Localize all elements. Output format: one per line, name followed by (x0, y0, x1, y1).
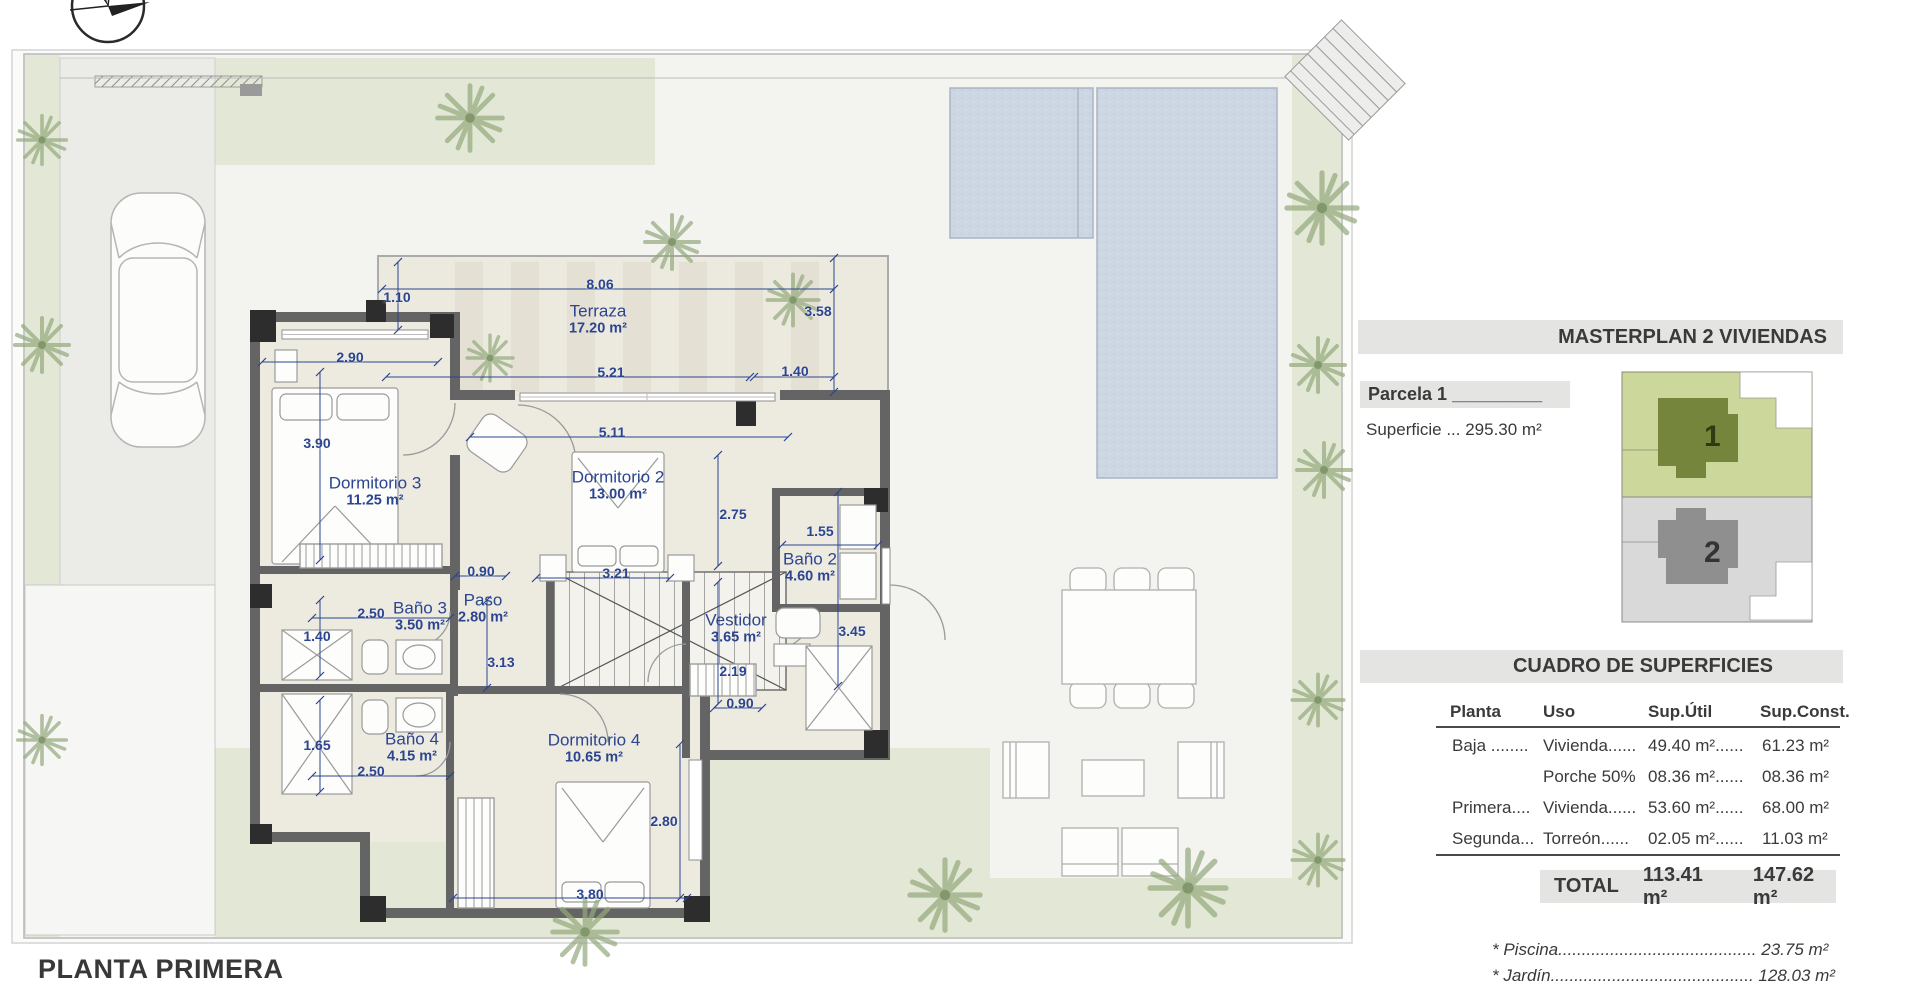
parcela-banner: Parcela 1 _________ (1360, 381, 1570, 408)
col-header-planta: Planta (1450, 702, 1501, 722)
plan-sheet: Terraza17.20 m²Dormitorio 311.25 m²Dormi… (0, 0, 1920, 980)
table-cell: 61.23 m² (1762, 736, 1829, 756)
garden-band-top (215, 58, 655, 165)
table-cell: 53.60 m²...... (1648, 798, 1743, 818)
compass-icon (70, 0, 150, 42)
table-cell: 68.00 m² (1762, 798, 1829, 818)
note-piscina: * Piscina...............................… (1492, 940, 1828, 960)
floor-title: PLANTA PRIMERA (38, 954, 284, 985)
closet (282, 630, 352, 794)
wardrobe-dorm4 (458, 798, 494, 908)
gate-post (240, 84, 262, 96)
table-rule-top (1436, 726, 1840, 728)
table-cell: 08.36 m²...... (1648, 767, 1743, 787)
bed-dorm3 (272, 388, 398, 564)
bed-dorm2 (572, 452, 664, 572)
table-rule-bottom (1436, 854, 1840, 856)
bath3-fixtures (362, 640, 442, 674)
radiator (300, 544, 442, 568)
table-cell: 11.03 m² (1762, 829, 1828, 849)
total-label: TOTAL (1554, 875, 1619, 898)
col-header-sup-util: Sup.Útil (1648, 702, 1712, 722)
nightstand (275, 350, 297, 382)
cuadro-title: CUADRO DE SUPERFICIES (1513, 655, 1773, 678)
bed-dorm4 (556, 782, 650, 908)
bath4-fixtures (362, 698, 442, 734)
dining-table (1062, 568, 1196, 708)
masterplan-minimap: 1 2 (1620, 370, 1816, 626)
table-cell: Vivienda...... (1543, 798, 1636, 818)
total-banner: TOTAL 113.41 m² 147.62 m² (1540, 870, 1836, 903)
table-cell: 08.36 m² (1762, 767, 1829, 787)
table-cell: Baja ........ (1452, 736, 1529, 756)
note-jardin: * Jardín................................… (1492, 966, 1835, 986)
nightstand (668, 555, 694, 581)
col-header-sup-const: Sup.Const. (1760, 702, 1850, 722)
table-cell: Segunda... (1452, 829, 1534, 849)
parcela-label: Parcela 1 _________ (1368, 384, 1542, 405)
patio-lower-left (25, 585, 215, 935)
total-sup-util: 113.41 m² (1643, 864, 1725, 910)
superficie-label: Superficie ... 295.30 m² (1366, 420, 1542, 440)
minimap-plot2-label: 2 (1704, 536, 1721, 569)
table-cell: 49.40 m²...... (1648, 736, 1743, 756)
masterplan-title-banner: MASTERPLAN 2 VIVIENDAS (1358, 320, 1843, 354)
cuadro-title-banner: CUADRO DE SUPERFICIES (1360, 650, 1843, 683)
col-header-uso: Uso (1543, 702, 1575, 722)
nightstand (540, 555, 566, 581)
table-cell: 02.05 m²...... (1648, 829, 1743, 849)
table-cell: Porche 50% (1543, 767, 1636, 787)
table-cell: Primera.... (1452, 798, 1530, 818)
vestidor-closet (690, 664, 756, 696)
minimap-plot1-label: 1 (1704, 420, 1721, 453)
masterplan-title: MASTERPLAN 2 VIVIENDAS (1558, 326, 1827, 349)
total-sup-const: 147.62 m² (1753, 864, 1836, 910)
table-cell: Vivienda...... (1543, 736, 1636, 756)
table-cell: Torreón...... (1543, 829, 1629, 849)
car-icon (111, 193, 205, 447)
garden-band-bottom-right (990, 878, 1292, 937)
